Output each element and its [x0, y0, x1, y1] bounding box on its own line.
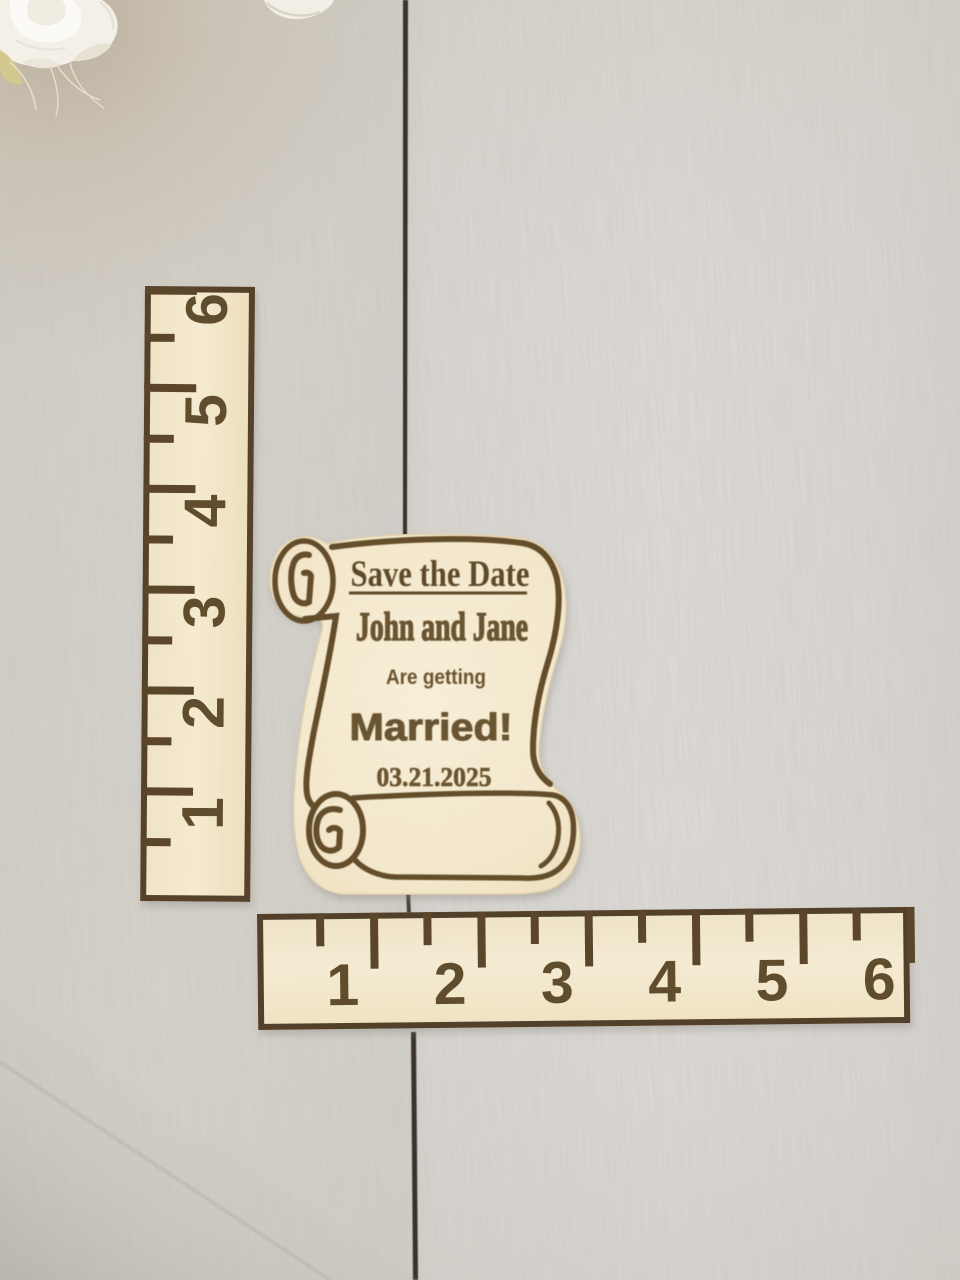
svg-text:5: 5 [173, 394, 239, 427]
svg-text:03.21.2025: 03.21.2025 [377, 762, 492, 792]
svg-text:John and Jane: John and Jane [356, 604, 528, 649]
svg-text:3: 3 [541, 950, 575, 1016]
svg-text:3: 3 [171, 595, 237, 628]
svg-text:Married!: Married! [350, 707, 513, 749]
svg-text:1: 1 [170, 797, 236, 830]
svg-text:4: 4 [648, 948, 682, 1014]
svg-text:2: 2 [171, 696, 237, 729]
svg-text:4: 4 [172, 494, 238, 528]
svg-text:1: 1 [326, 952, 360, 1018]
svg-text:6: 6 [862, 946, 896, 1012]
svg-text:Are getting: Are getting [386, 666, 486, 689]
svg-text:2: 2 [433, 951, 467, 1017]
svg-text:6: 6 [174, 293, 240, 326]
svg-text:5: 5 [755, 947, 789, 1013]
svg-text:Save the Date: Save the Date [351, 554, 530, 595]
